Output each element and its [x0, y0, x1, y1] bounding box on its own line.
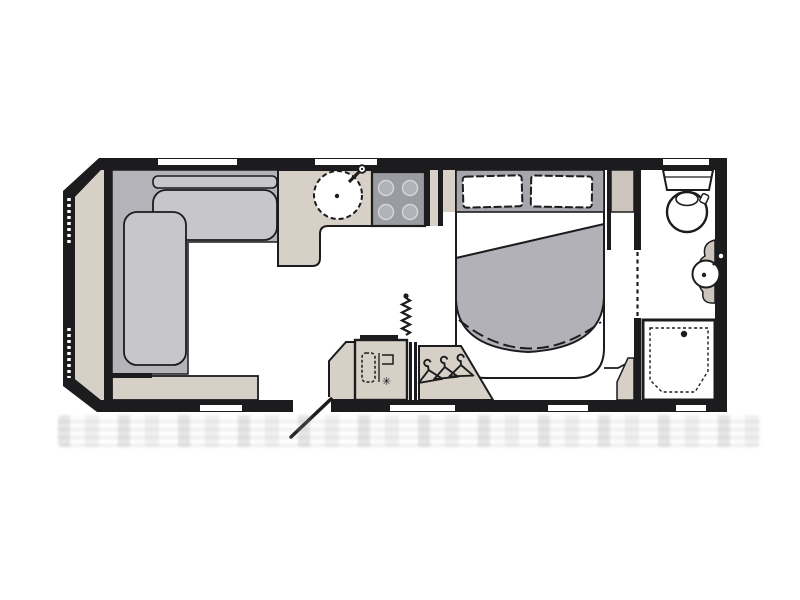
blind-spring-top [403, 293, 408, 298]
shower-tray [643, 320, 715, 400]
burner-icon [379, 205, 394, 220]
burner-icon [403, 181, 418, 196]
washroom-wall-upper [634, 170, 641, 250]
shelf-trim [112, 373, 152, 378]
sofa-side-cushion [124, 212, 186, 365]
unit-divider [409, 342, 412, 400]
basin-tap-knob [718, 253, 724, 259]
corner-infill [617, 358, 634, 400]
scan-noise-band [58, 415, 760, 447]
shower-drain [681, 331, 687, 337]
bedside-cabinet [611, 170, 634, 212]
toilet-cistern [663, 170, 713, 190]
lounge [112, 170, 279, 400]
window-slit [158, 159, 237, 165]
burner-icon [379, 181, 394, 196]
bedroom [456, 170, 634, 400]
fridge-icon [355, 340, 407, 400]
pillow [463, 175, 523, 208]
sofa-back-cushion [153, 176, 277, 188]
flush-lever [699, 193, 709, 204]
floorplan-canvas: ✳ [0, 0, 800, 600]
window-slit [390, 405, 455, 411]
kitchen-partition [438, 170, 443, 226]
shower-tray-outer [643, 320, 715, 400]
kitchen-partition [425, 170, 430, 226]
front-locker [75, 170, 112, 400]
front-partition-wall [104, 170, 112, 400]
floor-plan-page: ✳ [0, 0, 800, 600]
headboard-side-trim [443, 170, 456, 212]
burner-icon [403, 205, 418, 220]
sink-drain [335, 194, 339, 198]
hob [372, 172, 425, 226]
kitchen [278, 165, 456, 266]
window-slit [200, 405, 242, 411]
pillow [531, 175, 593, 207]
window-slit [676, 405, 706, 411]
blind-spring-icon [402, 298, 410, 335]
partition-infill [430, 170, 438, 226]
fridge-top-trim [360, 335, 398, 341]
washbasin-bowl [693, 261, 720, 288]
window-slit [548, 405, 588, 411]
unit-angled-end [329, 342, 355, 400]
washroom-wall-lower [634, 318, 641, 400]
side-shelf [112, 376, 258, 400]
wardrobe-stub-wall [607, 170, 611, 250]
front-locker-shelf [75, 170, 104, 400]
toilet-icon [663, 170, 713, 232]
tap-knob-dot [361, 168, 363, 170]
snowflake-icon: ✳ [382, 375, 391, 388]
toilet-seat [676, 193, 698, 206]
window-slit [315, 159, 377, 165]
basin-drain [702, 273, 706, 277]
window-slit [663, 159, 709, 165]
washroom [634, 170, 724, 400]
unit-divider [414, 342, 417, 400]
